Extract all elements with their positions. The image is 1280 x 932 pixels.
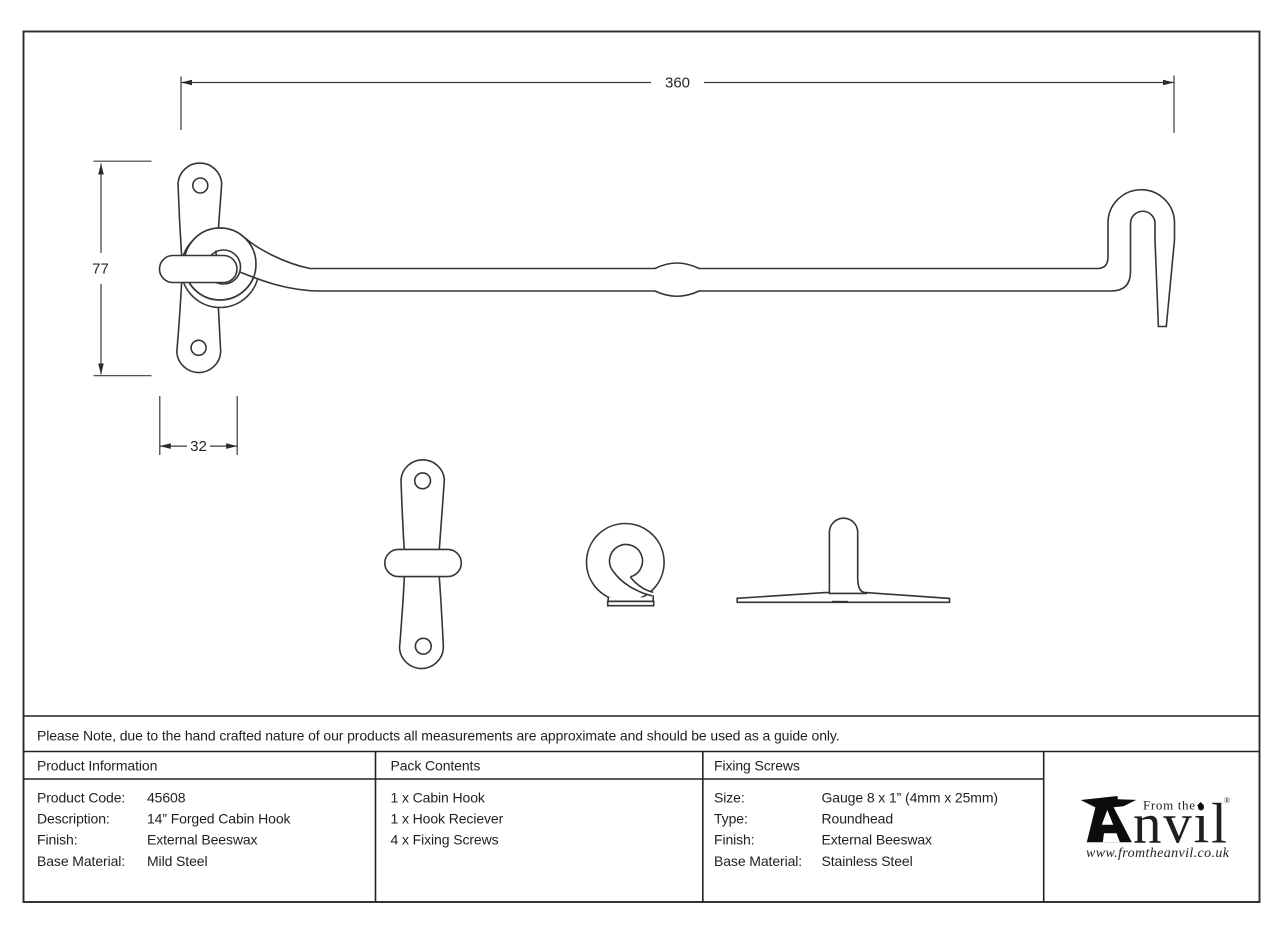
svg-text:Product Information: Product Information	[37, 758, 157, 774]
svg-text:Gauge 8 x 1” (4mm x 25mm): Gauge 8 x 1” (4mm x 25mm)	[822, 790, 998, 806]
svg-text:360: 360	[665, 75, 690, 92]
svg-text:Roundhead: Roundhead	[822, 811, 894, 827]
svg-text:®: ®	[1224, 796, 1230, 805]
svg-text:External Beeswax: External Beeswax	[822, 832, 933, 848]
svg-text:External Beeswax: External Beeswax	[147, 832, 258, 848]
svg-text:Please Note, due to the hand c: Please Note, due to the hand crafted nat…	[37, 728, 840, 744]
svg-text:Stainless Steel: Stainless Steel	[822, 853, 913, 869]
svg-text:Mild Steel: Mild Steel	[147, 853, 207, 869]
svg-text:Base Material:: Base Material:	[37, 853, 125, 869]
svg-text:14” Forged Cabin Hook: 14” Forged Cabin Hook	[147, 811, 292, 827]
svg-text:1 x Hook Reciever: 1 x Hook Reciever	[391, 811, 504, 827]
svg-text:www.fromtheanvil.co.uk: www.fromtheanvil.co.uk	[1086, 846, 1230, 861]
svg-text:Finish:: Finish:	[714, 832, 755, 848]
svg-text:Fixing Screws: Fixing Screws	[714, 758, 800, 774]
svg-text:Product Code:: Product Code:	[37, 790, 125, 806]
svg-text:From the: From the	[1143, 798, 1195, 813]
svg-text:Type:: Type:	[714, 811, 748, 827]
svg-text:4 x Fixing Screws: 4 x Fixing Screws	[391, 832, 499, 848]
svg-text:Pack Contents: Pack Contents	[391, 758, 481, 774]
svg-text:Description:: Description:	[37, 811, 110, 827]
svg-text:45608: 45608	[147, 790, 186, 806]
svg-text:32: 32	[190, 438, 207, 455]
svg-text:Size:: Size:	[714, 790, 745, 806]
svg-text:Base Material:: Base Material:	[714, 853, 802, 869]
svg-text:Finish:: Finish:	[37, 832, 78, 848]
svg-text:77: 77	[92, 261, 109, 278]
svg-text:1 x Cabin Hook: 1 x Cabin Hook	[391, 790, 486, 806]
